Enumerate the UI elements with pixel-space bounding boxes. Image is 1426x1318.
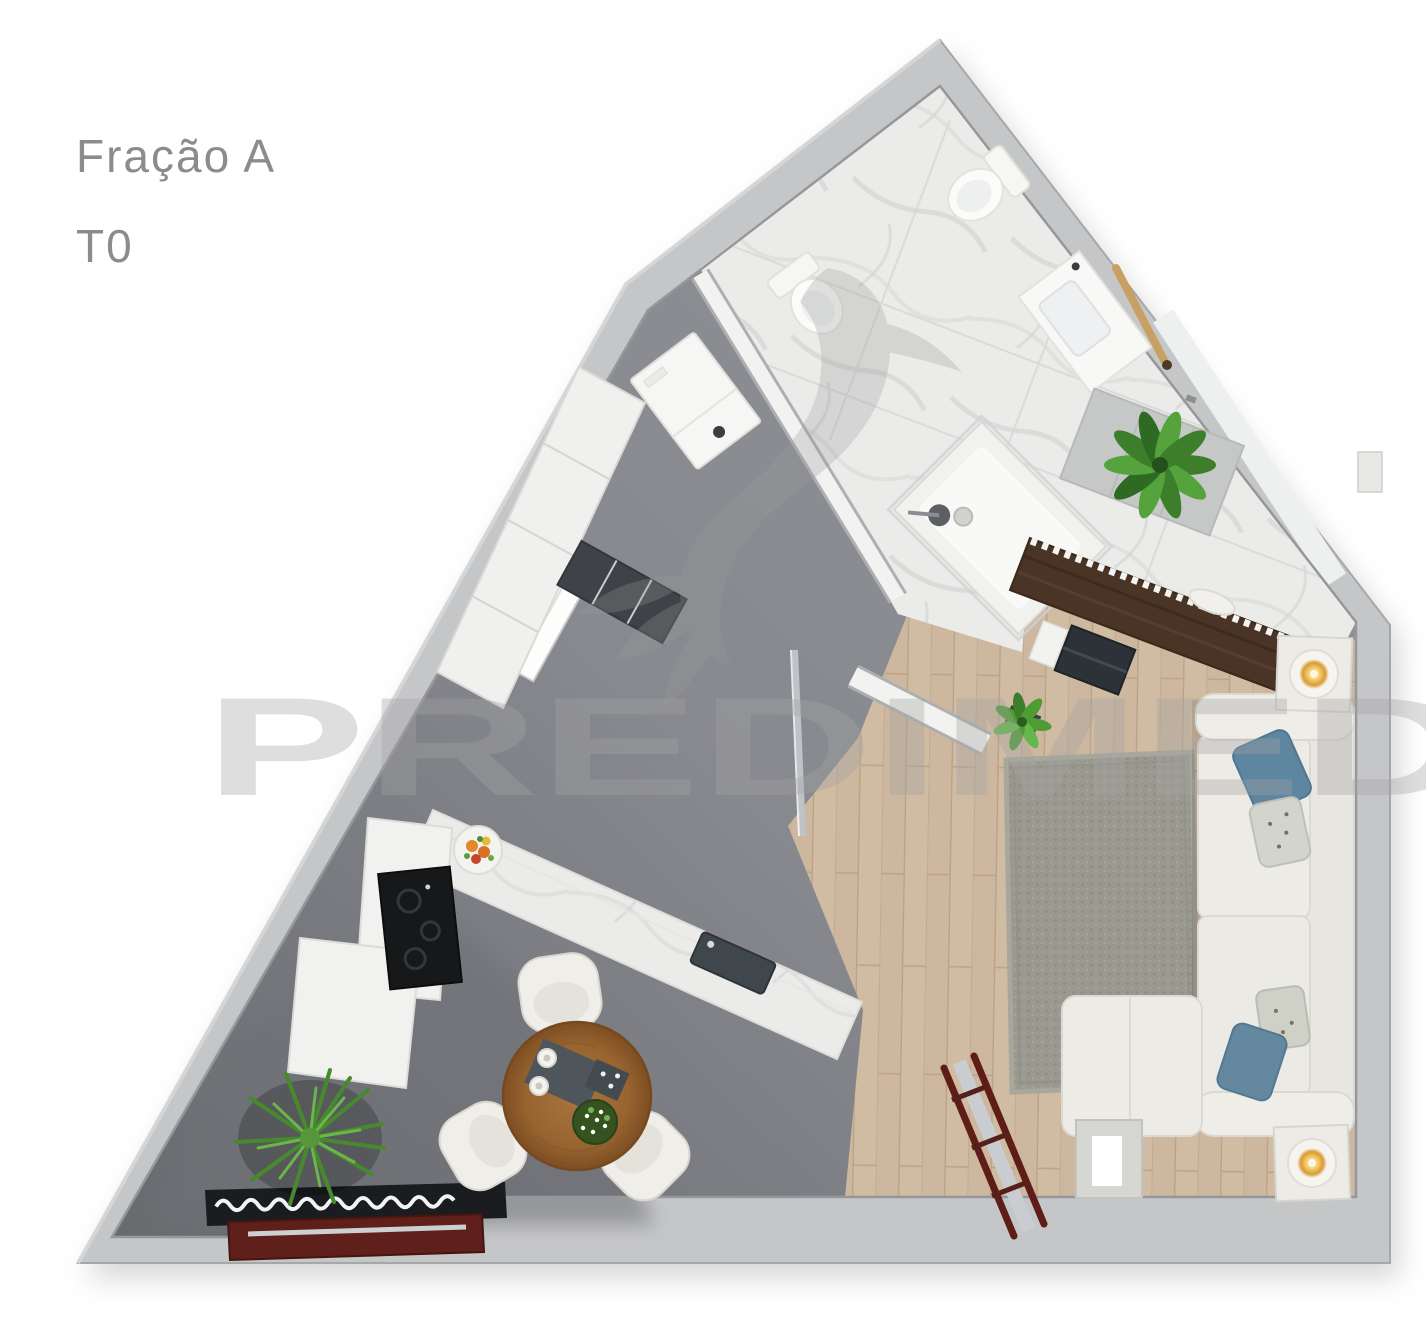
watermark-text: PREDIMED <box>205 668 1426 825</box>
red-cabinet <box>228 1214 484 1260</box>
page-title: Fração A <box>76 130 276 182</box>
towel-rail-end <box>1162 360 1172 370</box>
header: Fração A T0 <box>76 130 276 272</box>
page-subtitle: T0 <box>76 220 134 272</box>
chaise-lounge <box>1062 996 1202 1136</box>
floorplan-canvas: PREDIMED Fração A T0 <box>0 0 1426 1318</box>
fruit-bowl <box>454 826 502 874</box>
side-table-candle <box>1274 1125 1351 1202</box>
salad-bowl <box>573 1100 617 1144</box>
floorplan <box>78 40 1390 1263</box>
floorplan-page: PREDIMED Fração A T0 <box>0 0 1426 1318</box>
cooktop <box>378 867 462 990</box>
pedestal-stand <box>1076 1120 1142 1198</box>
dining-table <box>503 1022 651 1170</box>
wall-vent <box>1358 452 1382 492</box>
